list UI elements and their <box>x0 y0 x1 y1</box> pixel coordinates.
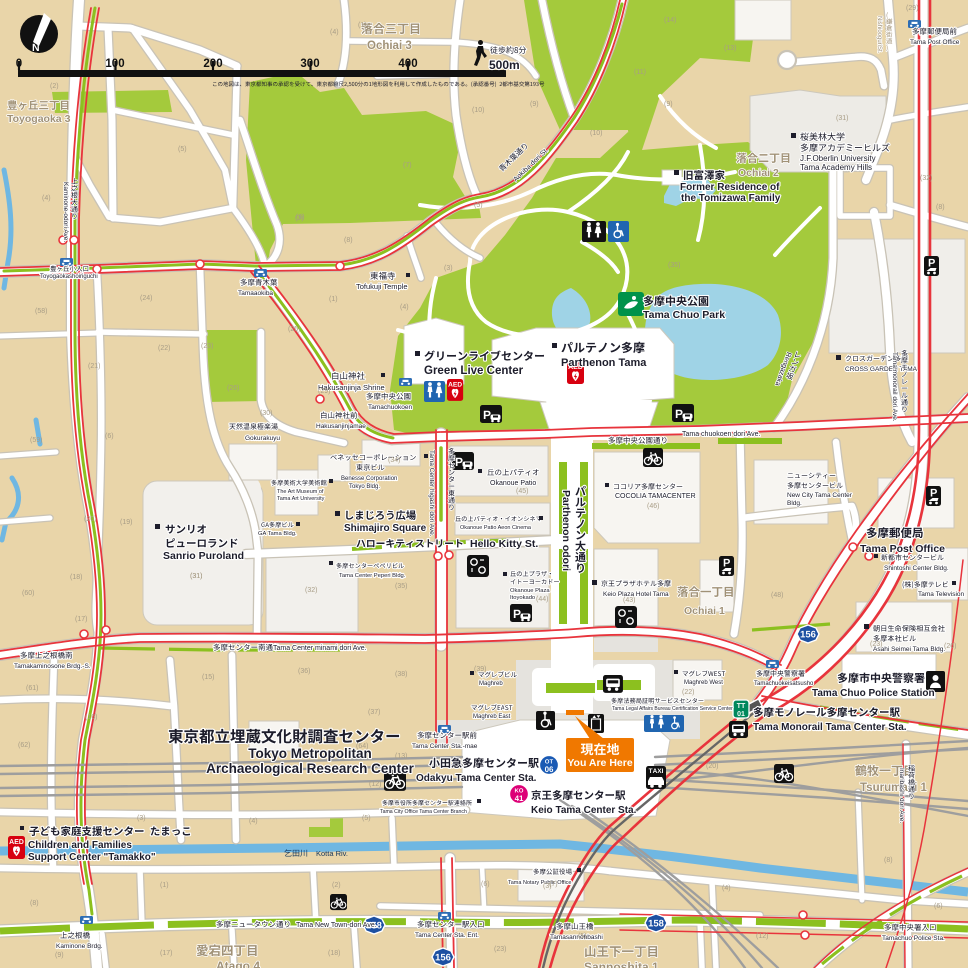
svg-text:(45): (45) <box>516 488 528 495</box>
svg-text:(22): (22) <box>158 345 170 352</box>
svg-text:(32): (32) <box>305 587 317 594</box>
svg-text:Tama Television: Tama Television <box>918 591 965 598</box>
svg-text:(23): (23) <box>870 641 882 648</box>
svg-text:(32): (32) <box>920 175 932 182</box>
svg-text:(1): (1) <box>160 882 169 889</box>
svg-text:(12): (12) <box>756 933 768 940</box>
svg-text:(24): (24) <box>140 295 152 302</box>
svg-text:(19): (19) <box>120 519 132 526</box>
svg-text:Keio Tama Center Sta.: Keio Tama Center Sta. <box>531 805 637 816</box>
svg-text:Tama Academy Hills: Tama Academy Hills <box>800 163 872 172</box>
svg-text:J.F.Oberlin University: J.F.Oberlin University <box>800 154 876 163</box>
svg-text:Okanoue Plaza: Okanoue Plaza <box>510 588 550 594</box>
svg-text:Tama Center higashi dori Ave.: Tama Center higashi dori Ave. <box>428 450 435 537</box>
svg-text:400: 400 <box>398 58 417 70</box>
svg-text:(4): (4) <box>330 29 339 36</box>
svg-text:(4): (4) <box>400 304 409 311</box>
svg-text:(23): (23) <box>201 343 213 350</box>
svg-text:Inaribashi dori Ave.: Inaribashi dori Ave. <box>898 768 905 823</box>
svg-text:Tamachuokeisatsusho: Tamachuokeisatsusho <box>754 681 814 687</box>
svg-text:Tama Legal Affairs Bureau Cert: Tama Legal Affairs Bureau Certification … <box>612 706 733 712</box>
svg-text:(35): (35) <box>668 262 680 269</box>
svg-text:Support Center "Tamakko": Support Center "Tamakko" <box>28 852 156 863</box>
svg-text:Toyogaoka 3: Toyogaoka 3 <box>7 113 71 125</box>
svg-text:(6): (6) <box>934 903 943 910</box>
svg-text:(13): (13) <box>724 45 736 52</box>
svg-text:Tama Monorail Tama Center Sta.: Tama Monorail Tama Center Sta. <box>753 722 907 733</box>
svg-text:GA Tama Bldg.: GA Tama Bldg. <box>258 531 297 537</box>
svg-text:100: 100 <box>105 58 124 70</box>
svg-text:COCOLIA TAMACENTER: COCOLIA TAMACENTER <box>615 493 696 500</box>
svg-text:New City Tama Center: New City Tama Center <box>787 492 853 499</box>
svg-text:(9): (9) <box>55 952 64 959</box>
svg-text:Tofukuji Temple: Tofukuji Temple <box>356 282 408 291</box>
svg-text:Tama Post Office: Tama Post Office <box>860 543 945 555</box>
svg-text:(34): (34) <box>388 457 400 464</box>
svg-text:(14): (14) <box>664 17 676 24</box>
svg-text:500m: 500m <box>489 58 520 72</box>
svg-text:(6): (6) <box>481 881 490 888</box>
svg-text:Tama Center minami dori Ave.: Tama Center minami dori Ave. <box>273 645 367 652</box>
svg-text:Tama New Town-dori Ave.: Tama New Town-dori Ave. <box>296 922 377 929</box>
svg-text:(8): (8) <box>884 857 893 864</box>
svg-text:Okanoue Patio: Okanoue Patio <box>490 480 536 487</box>
svg-text:(18): (18) <box>70 574 82 581</box>
svg-text:(60): (60) <box>22 590 34 597</box>
svg-text:Sanrio Puroland: Sanrio Puroland <box>163 550 244 562</box>
svg-text:(20): (20) <box>84 516 96 523</box>
svg-text:Hello Kitty St.: Hello Kitty St. <box>470 538 538 550</box>
svg-text:(10): (10) <box>472 107 484 114</box>
svg-text:Tama Notary Public Office: Tama Notary Public Office <box>508 880 571 886</box>
svg-text:Ochiai 1: Ochiai 1 <box>684 605 725 617</box>
svg-text:(8): (8) <box>344 237 353 244</box>
svg-text:Kaminone-odori Ave.: Kaminone-odori Ave. <box>62 182 69 242</box>
svg-text:Former Residence of: Former Residence of <box>680 182 780 193</box>
svg-text:(38): (38) <box>395 671 407 678</box>
svg-text:(1): (1) <box>358 22 367 29</box>
svg-text:(2): (2) <box>332 882 341 889</box>
svg-text:(39): (39) <box>474 666 486 673</box>
svg-text:Benesse Corporation: Benesse Corporation <box>341 476 397 482</box>
svg-text:(20): (20) <box>706 763 718 770</box>
svg-text:(8): (8) <box>30 900 39 907</box>
svg-text:Tama monorail dori Ave.: Tama monorail dori Ave. <box>891 352 898 422</box>
svg-text:(64): (64) <box>356 743 368 750</box>
svg-text:Tama City Office Tama Center B: Tama City Office Tama Center Branch <box>380 809 467 815</box>
svg-text:(36): (36) <box>298 668 310 675</box>
svg-text:(62): (62) <box>18 742 30 749</box>
svg-text:300: 300 <box>300 58 319 70</box>
svg-text:Kotta Riv.: Kotta Riv. <box>316 849 348 858</box>
svg-text:Tamachuokoen: Tamachuokoen <box>368 404 412 411</box>
svg-text:Parthenon odori: Parthenon odori <box>560 490 572 571</box>
svg-text:(17): (17) <box>160 950 172 957</box>
svg-text:Tama Center Sta.-mae: Tama Center Sta.-mae <box>412 743 478 750</box>
svg-text:Atago 4: Atago 4 <box>216 959 260 968</box>
svg-text:(16): (16) <box>85 714 97 721</box>
svg-text:(13): (13) <box>395 753 407 760</box>
svg-text:Tamakaminosone Brdg.-S.: Tamakaminosone Brdg.-S. <box>14 663 91 670</box>
svg-text:(5): (5) <box>474 202 483 209</box>
svg-text:(4): (4) <box>249 818 258 825</box>
svg-text:(17): (17) <box>75 616 87 623</box>
svg-text:(5): (5) <box>178 146 187 153</box>
svg-text:Tsurumaki 1: Tsurumaki 1 <box>860 782 927 794</box>
svg-text:Tama Chuo Police Station: Tama Chuo Police Station <box>812 688 935 699</box>
svg-text:(3): (3) <box>444 265 453 272</box>
svg-text:Ochiai 2: Ochiai 2 <box>738 167 779 179</box>
svg-text:You Are Here: You Are Here <box>567 757 633 769</box>
svg-text:(9): (9) <box>530 101 539 108</box>
svg-text:Gokurakuyu: Gokurakuyu <box>245 435 280 442</box>
svg-text:(5): (5) <box>362 815 371 822</box>
svg-text:Tama chuokoen dori Ave.: Tama chuokoen dori Ave. <box>682 431 761 438</box>
svg-text:(21): (21) <box>88 363 100 370</box>
svg-text:(35): (35) <box>395 583 407 590</box>
svg-text:Keio Plaza Hotel Tama: Keio Plaza Hotel Tama <box>603 591 669 598</box>
svg-text:Tama Center Sta. Ent.: Tama Center Sta. Ent. <box>415 932 479 939</box>
svg-text:(3): (3) <box>137 815 146 822</box>
svg-text:(10): (10) <box>590 130 602 137</box>
svg-text:Tamachuo Police Sta.: Tamachuo Police Sta. <box>882 935 945 942</box>
svg-text:Toyogaokashoiriguchi: Toyogaokashoiriguchi <box>40 274 98 280</box>
svg-text:(48): (48) <box>771 592 783 599</box>
svg-text:Green Live Center: Green Live Center <box>424 365 524 377</box>
svg-text:(26): (26) <box>227 385 239 392</box>
svg-text:Hakusanjinjamae: Hakusanjinjamae <box>316 423 366 430</box>
svg-text:Itoyokado: Itoyokado <box>510 595 535 601</box>
svg-text:Okanoue Patio Aeon Cinema: Okanoue Patio Aeon Cinema <box>460 525 532 531</box>
svg-text:(44): (44) <box>536 596 548 603</box>
svg-text:Tama Post Office: Tama Post Office <box>910 39 960 46</box>
svg-text:(22): (22) <box>682 689 694 696</box>
svg-text:Ochiai 3: Ochiai 3 <box>367 40 412 52</box>
svg-text:Tamasannohbashi: Tamasannohbashi <box>550 934 603 941</box>
svg-text:(26): (26) <box>944 643 956 650</box>
svg-text:0: 0 <box>16 58 22 70</box>
svg-text:200: 200 <box>203 58 222 70</box>
svg-text:(8): (8) <box>936 204 945 211</box>
svg-text:Shimajiro Square: Shimajiro Square <box>344 523 427 534</box>
svg-text:Tokyo Bldg.: Tokyo Bldg. <box>349 484 380 490</box>
svg-text:the Tomizawa Family: the Tomizawa Family <box>681 193 781 204</box>
svg-text:(46): (46) <box>647 503 659 510</box>
svg-text:(31): (31) <box>836 115 848 122</box>
svg-text:(61): (61) <box>26 685 38 692</box>
svg-text:(9): (9) <box>664 101 673 108</box>
svg-text:(31): (31) <box>190 573 202 580</box>
svg-text:Tokyo Metropolitan: Tokyo Metropolitan <box>248 746 372 761</box>
svg-text:(11): (11) <box>634 69 646 76</box>
svg-text:(5): (5) <box>578 933 587 940</box>
svg-text:(29): (29) <box>318 388 330 395</box>
svg-text:Sannoshita 1: Sannoshita 1 <box>584 960 659 968</box>
svg-text:(58): (58) <box>35 308 47 315</box>
svg-text:Parthenon Tama: Parthenon Tama <box>561 357 647 369</box>
svg-text:Maghreb West: Maghreb West <box>684 680 723 686</box>
svg-text:Maghreb: Maghreb <box>479 681 503 687</box>
svg-text:(25): (25) <box>288 326 300 333</box>
svg-text:(29): (29) <box>906 5 918 12</box>
svg-text:The Art Museum of: The Art Museum of <box>277 489 324 495</box>
svg-text:(1): (1) <box>329 296 338 303</box>
svg-text:(43): (43) <box>623 597 635 604</box>
svg-text:Tama Art University: Tama Art University <box>277 496 325 502</box>
svg-text:(7): (7) <box>403 162 412 169</box>
svg-text:Tamaaokiba: Tamaaokiba <box>238 290 273 297</box>
svg-text:Tama Center Peperi Bldg.: Tama Center Peperi Bldg. <box>339 573 406 579</box>
svg-text:(15): (15) <box>202 674 214 681</box>
svg-text:(30): (30) <box>260 410 272 417</box>
svg-text:(3): (3) <box>543 883 552 890</box>
svg-text:Shintoshi Center Bldg.: Shintoshi Center Bldg. <box>884 565 949 572</box>
svg-text:(12): (12) <box>369 781 381 788</box>
svg-text:Odakyu Tama Center Sta.: Odakyu Tama Center Sta. <box>416 773 537 784</box>
svg-text:(23): (23) <box>494 946 506 953</box>
svg-text:Bldg.: Bldg. <box>787 500 802 507</box>
svg-text:Archaeological Research Center: Archaeological Research Center <box>206 761 415 776</box>
svg-text:Children and Families: Children and Families <box>28 840 132 851</box>
svg-text:(2): (2) <box>50 83 59 90</box>
svg-text:(59): (59) <box>30 437 42 444</box>
svg-text:(6): (6) <box>105 433 114 440</box>
svg-text:Maghreb East: Maghreb East <box>473 714 511 720</box>
svg-text:(4): (4) <box>722 885 731 892</box>
svg-text:(6): (6) <box>296 214 305 221</box>
svg-text:Kaminone Brdg.: Kaminone Brdg. <box>56 943 103 950</box>
svg-text:(4): (4) <box>42 195 51 202</box>
svg-text:Tama Chuo Park: Tama Chuo Park <box>643 309 725 321</box>
svg-text:(37): (37) <box>368 709 380 716</box>
svg-text:NishiooguriSt.: NishiooguriSt. <box>876 16 882 54</box>
svg-text:(18): (18) <box>328 950 340 957</box>
svg-text:Asahi Seimei Tama Bldg.: Asahi Seimei Tama Bldg. <box>873 646 945 653</box>
